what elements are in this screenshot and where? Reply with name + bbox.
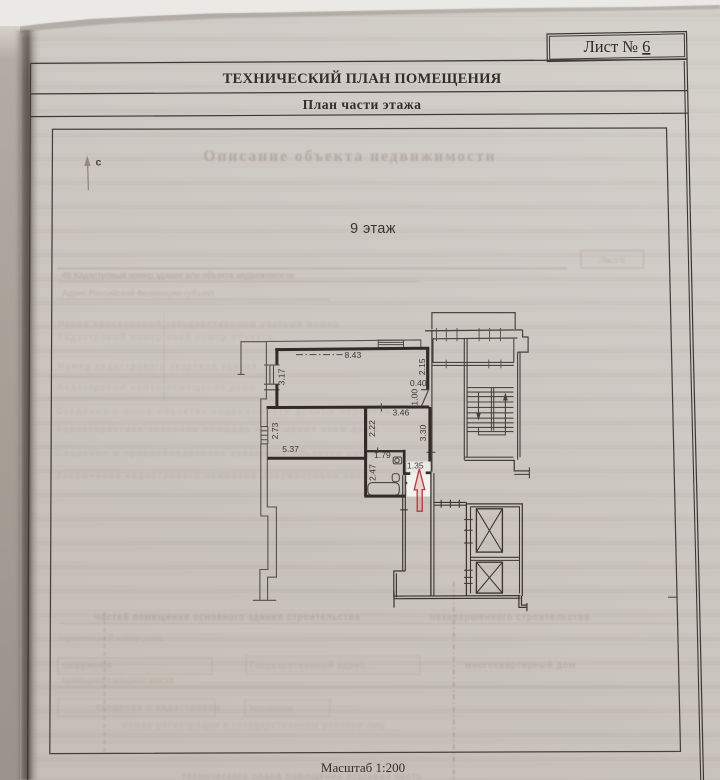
svg-text:Кадастровый номер помещения до: Кадастровый номер помещения дома [58, 382, 256, 392]
svg-text:сведения о кадастровом: сведения о кадастровом [96, 702, 221, 712]
svg-text:помещения машино-места: помещения машино-места [62, 675, 174, 685]
svg-text:номер регистрации в государств: номер регистрации в государственном реес… [122, 720, 385, 730]
svg-text:положение: положение [250, 703, 294, 713]
svg-text:1.00: 1.00 [410, 389, 420, 406]
svg-text:9 этаж: 9 этаж [350, 221, 396, 237]
svg-text:многоквартирный дом: многоквартирный дом [465, 660, 576, 670]
svg-text:Государственный адрес: Государственный адрес [250, 660, 366, 670]
svg-text:частей помещения основного зда: частей помещения основного здания строит… [95, 612, 361, 622]
svg-text:1.79: 1.79 [374, 450, 391, 460]
svg-text:Заключение кадастрового инжене: Заключение кадастрового инженера докумен… [56, 470, 376, 480]
svg-text:8.43: 8.43 [345, 350, 362, 360]
svg-text:Адрес Российской Федерации суб: Адрес Российской Федерации субъект [62, 288, 215, 298]
svg-text:5.37: 5.37 [282, 444, 299, 454]
svg-text:Лист 6: Лист 6 [599, 255, 625, 265]
svg-text:Масштаб 1:200: Масштаб 1:200 [321, 760, 405, 775]
svg-text:Номер кадастрового квартала зд: Номер кадастрового квартала здания [58, 361, 258, 371]
svg-text:46 Кадастровый номер здания ил: 46 Кадастровый номер здания или объекта … [62, 270, 294, 280]
svg-text:Лист № 6: Лист № 6 [584, 37, 651, 56]
svg-text:2.15: 2.15 [417, 358, 427, 375]
svg-text:3.46: 3.46 [393, 408, 410, 418]
svg-text:3.30: 3.30 [418, 424, 428, 441]
svg-text:Сведения о правообладателях ук: Сведения о правообладателях указанных об… [56, 448, 378, 458]
svg-text:Кадастровый номер иной номер о: Кадастровый номер иной номер объекта [58, 332, 274, 342]
svg-text:2.73: 2.73 [270, 422, 280, 439]
svg-text:План части этажа: План части этажа [303, 97, 422, 112]
svg-text:2.22: 2.22 [367, 420, 377, 437]
svg-text:0.40: 0.40 [410, 378, 427, 388]
svg-text:2.47: 2.47 [368, 464, 378, 481]
svg-text:ТЕХНИЧЕСКИЙ ПЛАН ПОМЕЩЕНИЯ: ТЕХНИЧЕСКИЙ ПЛАН ПОМЕЩЕНИЯ [223, 70, 502, 87]
svg-text:Ранее присвоенный государствен: Ранее присвоенный государственный учетны… [58, 319, 340, 329]
svg-text:с: с [96, 157, 102, 169]
svg-text:3.17: 3.17 [276, 368, 286, 385]
svg-text:Описание объекта недвижимости: Описание объекта недвижимости [203, 148, 496, 165]
svg-text:строительный номер дома: строительный номер дома [58, 633, 164, 643]
svg-text:Характеристика значение площад: Характеристика значение площадь помещени… [56, 424, 379, 434]
svg-text:1.35: 1.35 [407, 461, 424, 471]
